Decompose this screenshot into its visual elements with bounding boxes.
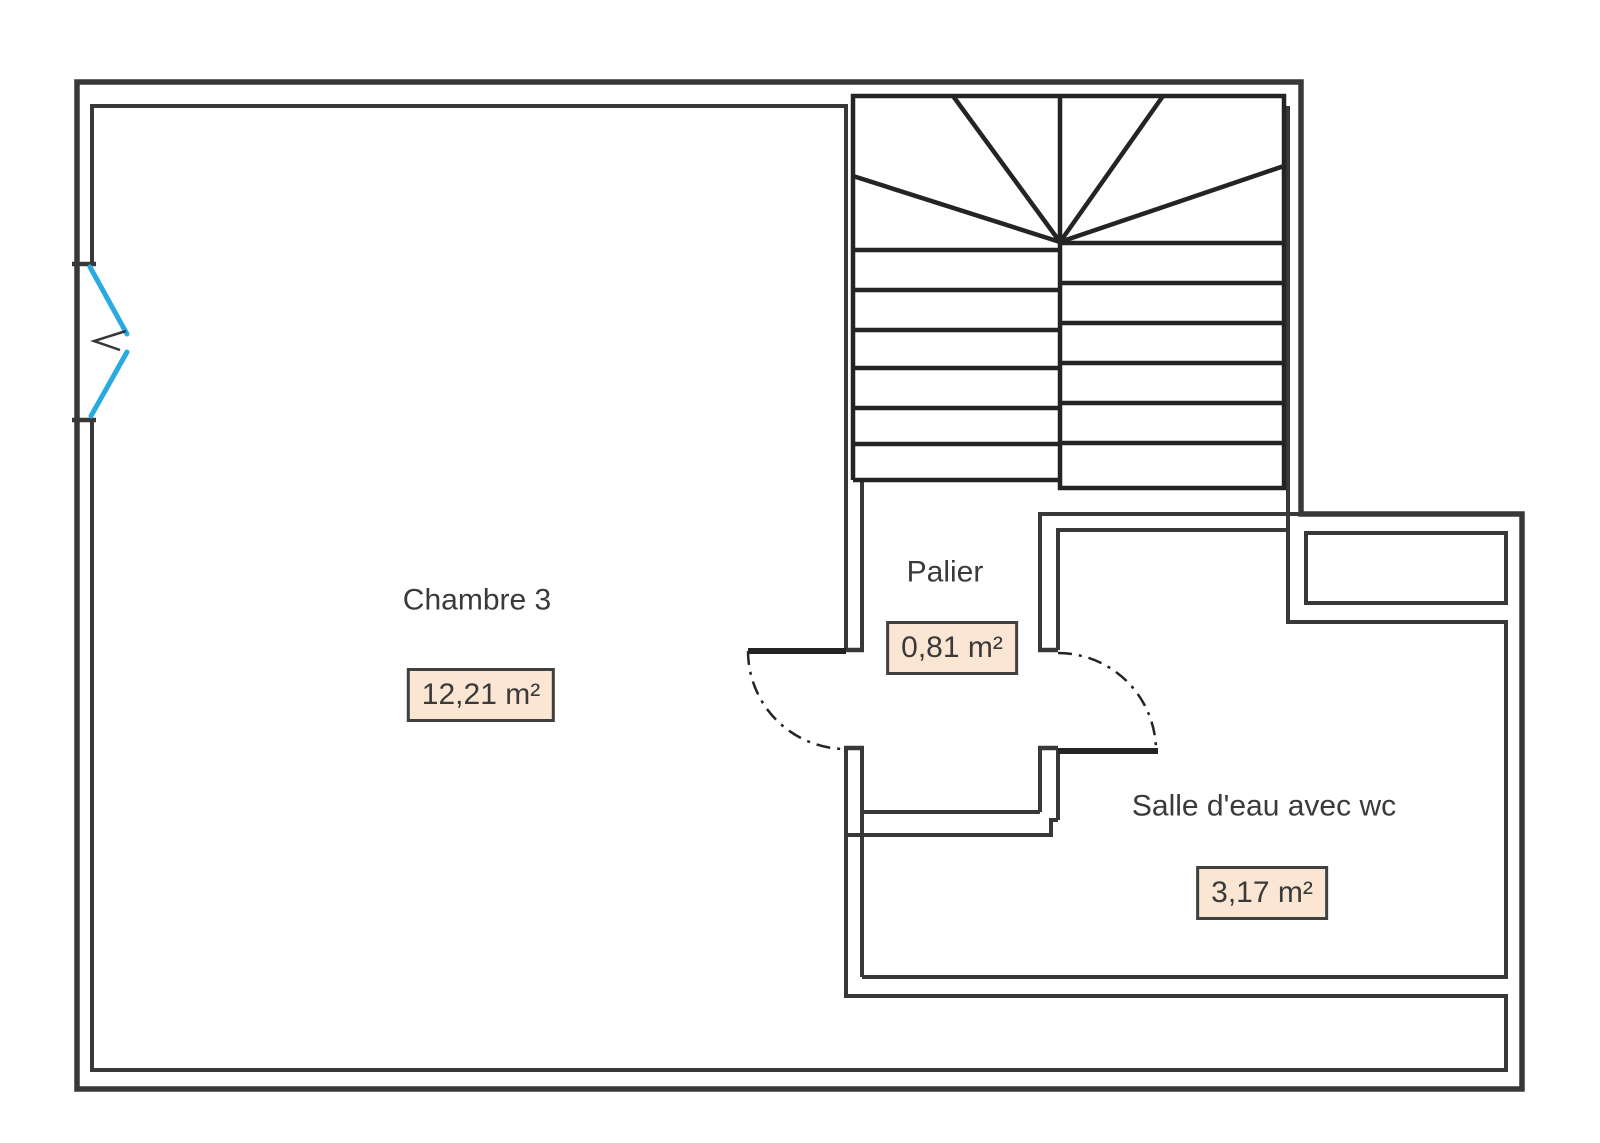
stair-winders	[853, 96, 1284, 242]
inner-walls	[92, 106, 1506, 1070]
wall-block	[1306, 533, 1506, 603]
room-label-palier: Palier	[907, 556, 984, 589]
wall-top-left-inner	[92, 106, 846, 650]
wall-left-bottom-inner	[92, 422, 1506, 1070]
area-badge-chambre3: 12,21 m²	[407, 668, 555, 722]
wall-annex-top	[1040, 514, 1301, 650]
floor-plan-drawing	[0, 0, 1600, 1143]
door-salle-eau	[1038, 650, 1158, 751]
door-salle-eau-swing-icon	[1058, 653, 1156, 751]
door-salle-eau-jambs	[1038, 650, 1058, 748]
window-open-direction-icon	[94, 331, 126, 350]
room-label-chambre3: Chambre 3	[403, 584, 551, 617]
door-chambre3-swing-icon	[748, 651, 846, 749]
door-chambre3	[748, 650, 864, 749]
door-chambre3-jambs	[844, 650, 864, 748]
stair-treads-right	[1060, 243, 1284, 443]
staircase	[853, 96, 1284, 488]
wall-annex-top-inner	[1058, 530, 1288, 650]
area-badge-palier: 0,81 m²	[886, 621, 1018, 675]
window-symbol	[72, 264, 127, 420]
room-label-salle-eau: Salle d'eau avec wc	[1132, 790, 1396, 823]
floor-plan: Chambre 3 Palier Salle d'eau avec wc 12,…	[0, 0, 1600, 1143]
stair-treads-left	[853, 250, 1060, 444]
wall-palier-bottom-outer	[846, 820, 1058, 835]
wall-salle-eau-inner	[862, 106, 1506, 977]
area-badge-salle-eau: 3,17 m²	[1196, 866, 1328, 920]
